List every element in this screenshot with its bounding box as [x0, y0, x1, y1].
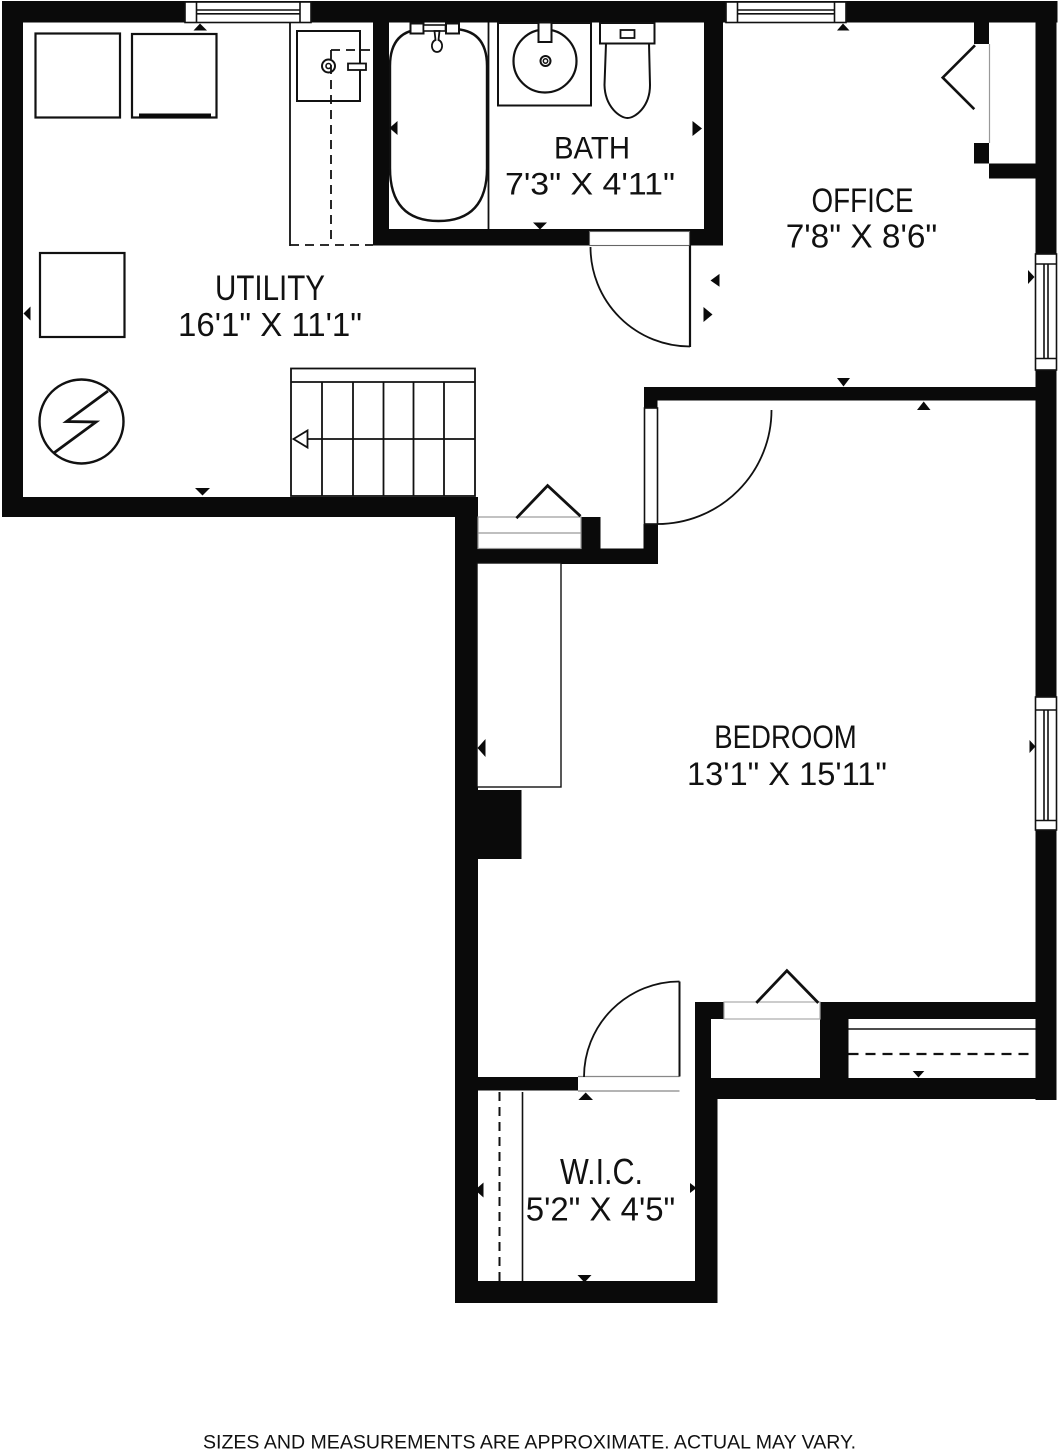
svg-text:7'3" X 4'11": 7'3" X 4'11" [505, 166, 675, 202]
svg-text:OFFICE: OFFICE [812, 182, 914, 220]
svg-text:BATH: BATH [554, 130, 630, 166]
svg-text:SIZES AND MEASUREMENTS ARE APP: SIZES AND MEASUREMENTS ARE APPROXIMATE. … [203, 1432, 856, 1454]
svg-text:7'8" X 8'6": 7'8" X 8'6" [786, 218, 938, 255]
svg-text:5'2" X 4'5": 5'2" X 4'5" [526, 1192, 676, 1229]
svg-text:W.I.C.: W.I.C. [560, 1151, 643, 1192]
svg-text:16'1" X 11'1": 16'1" X 11'1" [178, 307, 362, 344]
svg-text:UTILITY: UTILITY [215, 269, 325, 308]
svg-text:BEDROOM: BEDROOM [714, 719, 857, 755]
svg-text:13'1" X 15'11": 13'1" X 15'11" [687, 756, 887, 792]
